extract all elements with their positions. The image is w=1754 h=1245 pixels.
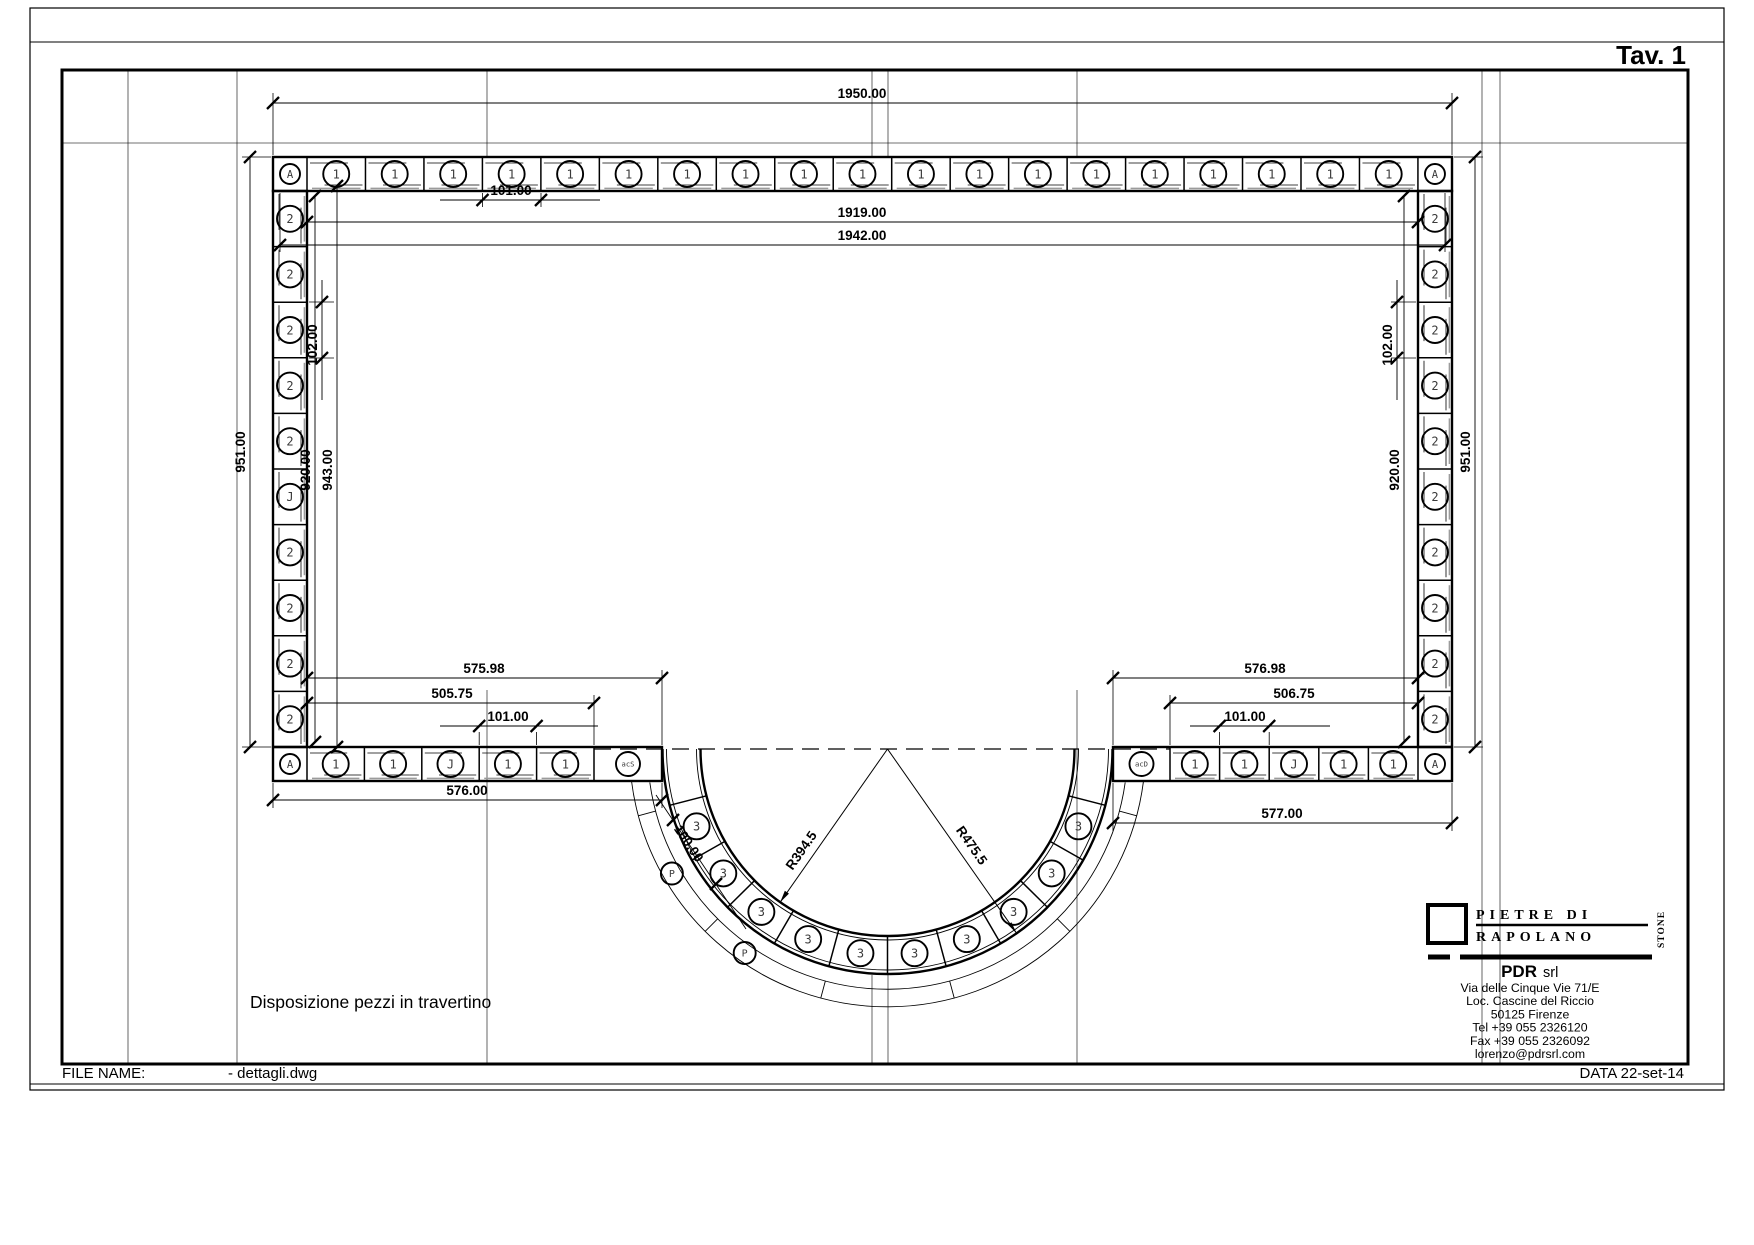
- piece-label: 2: [286, 657, 293, 671]
- radius-label-inner: R394.5: [783, 828, 821, 873]
- piece-label: 3: [963, 932, 970, 946]
- company-logo-line2: RAPOLANO: [1476, 930, 1596, 945]
- piece-label: 2: [286, 268, 293, 282]
- piece-label: 1: [504, 757, 511, 771]
- outer-ring-divider: [1057, 919, 1070, 932]
- piece-label: 2: [1431, 323, 1438, 337]
- piece-label: 1: [450, 167, 457, 181]
- arc-cell-divider: [982, 911, 1001, 944]
- piece-label: 2: [1431, 379, 1438, 393]
- piece-label: P: [742, 949, 748, 960]
- footer-file-name: - dettagli.dwg: [228, 1065, 317, 1082]
- piece-label: J: [447, 757, 454, 771]
- piece-label: 1: [1390, 757, 1397, 771]
- piece-label: 2: [286, 601, 293, 615]
- dim-right-inner: 920.00: [1387, 449, 1402, 490]
- piece-label: 3: [693, 820, 700, 834]
- piece-label: acS: [622, 760, 635, 769]
- company-logo-stone: STONE: [1657, 911, 1667, 948]
- dim-left-piece: 102.00: [305, 324, 320, 365]
- piece-label: 1: [1268, 167, 1275, 181]
- piece-label: 2: [1431, 268, 1438, 282]
- radius-leader-inner: [780, 749, 887, 902]
- arc-cell-divider: [1069, 796, 1106, 806]
- radius-arrow-inner: [780, 891, 789, 902]
- piece-label: 2: [286, 379, 293, 393]
- piece-label: A: [1432, 759, 1439, 771]
- company-address-line: Via delle Cinque Vie 71/E: [1460, 981, 1599, 995]
- piece-label: 1: [562, 757, 569, 771]
- footer-file-label: FILE NAME:: [62, 1065, 145, 1082]
- dim-left-inner2: 943.00: [320, 449, 335, 490]
- company-address-line: lorenzo@pdrsrl.com: [1475, 1047, 1585, 1061]
- piece-label: 1: [1210, 167, 1217, 181]
- piece-label: 1: [742, 167, 749, 181]
- piece-label: A: [287, 169, 294, 181]
- piece-label: 2: [1431, 546, 1438, 560]
- dim-arc-piece: 100.00: [671, 822, 707, 865]
- piece-label: 1: [1385, 167, 1392, 181]
- bottom-right-band: [1113, 747, 1452, 781]
- piece-label: A: [1432, 169, 1439, 181]
- bay-inner-arc-outer-line: [697, 749, 1079, 940]
- arc-cell-divider: [936, 930, 946, 967]
- outer-ring-divider: [821, 981, 826, 998]
- dim-top-piece: 101.00: [490, 183, 531, 198]
- piece-label: 2: [1431, 713, 1438, 727]
- piece-label: 1: [917, 167, 924, 181]
- piece-label: 3: [1010, 905, 1017, 919]
- piece-label: 1: [625, 167, 632, 181]
- arc-cell-divider: [670, 796, 707, 806]
- piece-label: 1: [976, 167, 983, 181]
- arc-cell-divider: [774, 911, 793, 944]
- footer-date: DATA 22-set-14: [1580, 1065, 1685, 1082]
- piece-label: 2: [1431, 435, 1438, 449]
- piece-label: 1: [332, 757, 339, 771]
- outer-ring-divider: [638, 811, 655, 816]
- piece-label: 1: [333, 167, 340, 181]
- sheet-border-outer: [30, 8, 1724, 1090]
- piece-label: 1: [1241, 757, 1248, 771]
- piece-label: 1: [859, 167, 866, 181]
- piece-label: 3: [758, 905, 765, 919]
- company-address-line: Tel +39 055 2326120: [1472, 1021, 1587, 1035]
- piece-label: 3: [805, 932, 812, 946]
- radius-leader-outer: [888, 749, 1017, 933]
- company-address-line: Loc. Cascine del Riccio: [1466, 994, 1594, 1008]
- company-name-suffix: srl: [1543, 965, 1558, 981]
- dim-bl-a: 575.98: [463, 661, 505, 676]
- dim-left-inner: 920.00: [298, 449, 313, 490]
- drawing-caption: Disposizione pezzi in travertino: [250, 992, 491, 1012]
- dim-right-piece: 102.00: [1380, 324, 1395, 365]
- piece-label: 1: [1151, 167, 1158, 181]
- piece-label: 1: [800, 167, 807, 181]
- sheet-title: Tav. 1: [1616, 40, 1686, 70]
- piece-label: 2: [1431, 601, 1438, 615]
- outer-ring-divider: [705, 919, 718, 932]
- dim-bl-width: 576.00: [446, 783, 487, 798]
- piece-label: 3: [857, 947, 864, 961]
- piece-label: 1: [1340, 757, 1347, 771]
- piece-label: 1: [391, 167, 398, 181]
- arc-cell-divider: [829, 930, 839, 967]
- piece-label: 1: [1327, 167, 1334, 181]
- piece-label: 3: [911, 947, 918, 961]
- dim-br-width: 577.00: [1261, 806, 1302, 821]
- piece-label: 1: [508, 167, 515, 181]
- radius-label-outer: R475.5: [953, 823, 991, 868]
- piece-label: 1: [683, 167, 690, 181]
- dim-inner-width-2: 1942.00: [838, 228, 887, 243]
- dim-br-piece: 101.00: [1224, 709, 1265, 724]
- dim-br-a: 576.98: [1244, 661, 1286, 676]
- dim-bl-b: 505.75: [431, 686, 473, 701]
- piece-label: 1: [566, 167, 573, 181]
- piece-label: 1: [1191, 757, 1198, 771]
- piece-label: 2: [1431, 657, 1438, 671]
- dim-left-outer: 951.00: [233, 431, 248, 472]
- piece-label: 3: [1075, 820, 1082, 834]
- bay-inner-arc: [701, 749, 1075, 936]
- piece-label: 2: [286, 713, 293, 727]
- dim-br-b: 506.75: [1273, 686, 1315, 701]
- piece-label: 1: [1093, 167, 1100, 181]
- piece-label: 2: [1431, 212, 1438, 226]
- piece-label: 2: [286, 435, 293, 449]
- piece-label: acD: [1135, 760, 1148, 769]
- dim-right-outer: 951.00: [1458, 431, 1473, 472]
- company-logo-line1: PIETRE DI: [1476, 908, 1592, 923]
- piece-label: 2: [286, 212, 293, 226]
- piece-label: P: [669, 869, 675, 880]
- arc-cell-divider: [1050, 841, 1083, 860]
- piece-label: 3: [1048, 867, 1055, 881]
- company-name: PDR: [1501, 962, 1537, 981]
- outer-ring-divider: [1119, 811, 1136, 816]
- piece-label: J: [1290, 757, 1297, 771]
- outer-ring-divider: [950, 981, 955, 998]
- dim-inner-width-1: 1919.00: [838, 205, 887, 220]
- piece-label: 1: [389, 757, 396, 771]
- company-address-line: 50125 Firenze: [1491, 1007, 1570, 1021]
- company-logo-square: [1428, 905, 1466, 943]
- piece-label: 1: [1034, 167, 1041, 181]
- dim-bl-piece: 101.00: [487, 709, 528, 724]
- piece-label: J: [286, 490, 293, 504]
- dim-top-width: 1950.00: [838, 86, 887, 101]
- piece-label: 2: [1431, 490, 1438, 504]
- piece-label: 2: [286, 323, 293, 337]
- piece-label: 2: [286, 546, 293, 560]
- cad-drawing-sheet: Tav. 1A1111111111111111111A22222J2222222…: [0, 0, 1754, 1240]
- company-address-line: Fax +39 055 2326092: [1470, 1034, 1590, 1048]
- piece-label: A: [287, 759, 294, 771]
